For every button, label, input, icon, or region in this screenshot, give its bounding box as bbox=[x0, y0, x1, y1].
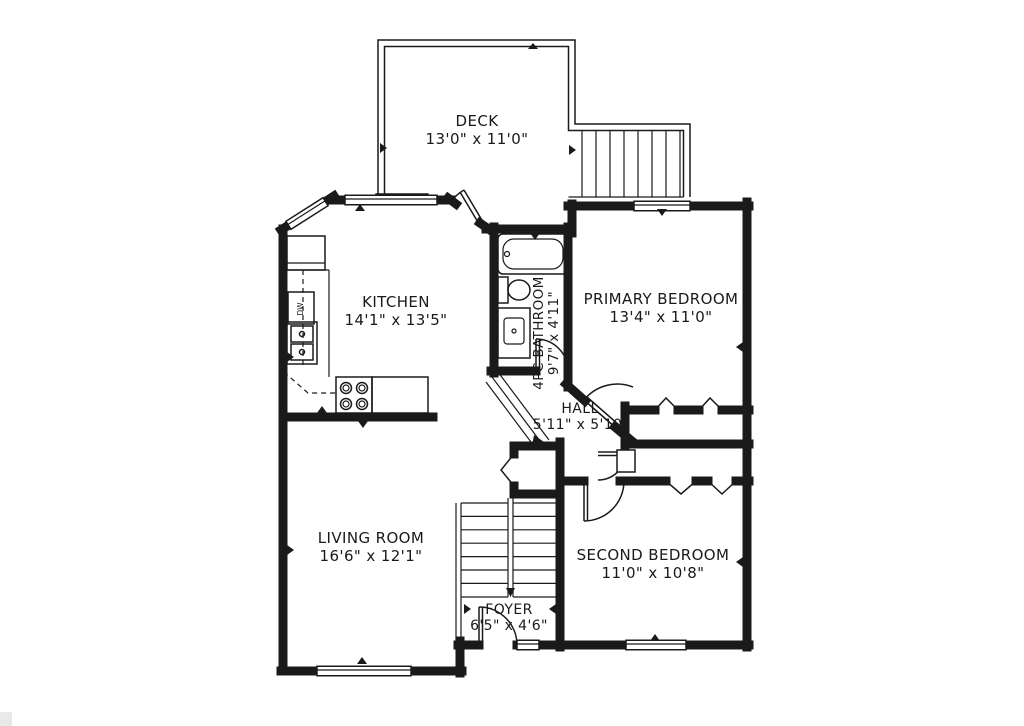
window-frame bbox=[345, 195, 437, 205]
kitchen-dims: 14'1" x 13'5" bbox=[345, 311, 448, 329]
refrigerator-body bbox=[287, 236, 325, 270]
stair-treads-right bbox=[513, 503, 556, 597]
wall-tick bbox=[287, 545, 294, 555]
wall-tick bbox=[736, 342, 743, 352]
toilet bbox=[498, 277, 530, 303]
counter-peninsula bbox=[372, 377, 428, 413]
foyer-dims: 6'5" x 4'6" bbox=[470, 618, 548, 634]
bathtub bbox=[498, 234, 568, 274]
window-frame bbox=[517, 640, 539, 650]
dishwasher-label: DW bbox=[296, 302, 305, 316]
stair-treads-left bbox=[461, 503, 508, 597]
wall-tick bbox=[549, 604, 556, 614]
wall-tick bbox=[317, 406, 327, 413]
burner-inner bbox=[359, 401, 365, 407]
burner bbox=[357, 399, 368, 410]
deck-railing-outer bbox=[378, 40, 690, 197]
second-bedroom-dims: 11'0" x 10'8" bbox=[602, 564, 705, 582]
wall-tick bbox=[657, 209, 667, 216]
stair-center-rail bbox=[508, 498, 513, 597]
vanity-drain bbox=[512, 329, 516, 333]
wall-tick bbox=[736, 557, 743, 567]
wall-tick bbox=[569, 145, 576, 155]
dishwasher: DW bbox=[288, 292, 314, 324]
wall-tick bbox=[380, 143, 387, 153]
deck-railing-inner bbox=[385, 47, 684, 198]
burner-inner bbox=[359, 385, 365, 391]
toilet-tank bbox=[498, 277, 508, 303]
second-bedroom-label: SECOND BEDROOM bbox=[577, 546, 730, 564]
hall-label: HALL bbox=[561, 401, 598, 417]
door-swing-arc bbox=[584, 481, 624, 521]
kitchen-label: KITCHEN bbox=[362, 293, 430, 311]
window-bay-top bbox=[345, 195, 437, 205]
sink-bowl-bottom bbox=[291, 344, 313, 360]
window-frame bbox=[317, 666, 411, 676]
second-bedroom-door bbox=[584, 481, 624, 521]
living-room-dims: 16'6" x 12'1" bbox=[320, 547, 423, 565]
sink-drain-bottom bbox=[300, 350, 305, 355]
living-room-label: LIVING ROOM bbox=[318, 529, 424, 547]
stair-left-rail bbox=[456, 503, 461, 642]
watermark bbox=[0, 712, 12, 726]
bathtub-faucet bbox=[505, 252, 510, 257]
hall-dims: 5'11" x 5'10" bbox=[533, 417, 629, 433]
door-leaf bbox=[584, 481, 588, 521]
primary-bedroom-label: PRIMARY BEDROOM bbox=[584, 290, 739, 308]
floor-plan: DW bbox=[0, 0, 1024, 726]
burner-inner bbox=[343, 385, 349, 391]
deck bbox=[376, 40, 690, 203]
sink-drain-top bbox=[300, 332, 305, 337]
wall-tick bbox=[464, 604, 471, 614]
door-swing-arc bbox=[584, 384, 633, 400]
window-bay-left bbox=[286, 198, 328, 230]
vanity-sink bbox=[498, 308, 530, 358]
vanity-basin bbox=[504, 318, 524, 344]
bathroom-label: 4PC BATHROOM bbox=[531, 276, 547, 389]
deck-stair-treads bbox=[582, 131, 680, 197]
burner-inner bbox=[343, 401, 349, 407]
window-living-bottom bbox=[317, 666, 411, 676]
burner bbox=[341, 399, 352, 410]
burner bbox=[357, 383, 368, 394]
deck-stairs bbox=[569, 131, 684, 197]
wall-primary-door-stub-a bbox=[566, 384, 585, 401]
burner bbox=[341, 383, 352, 394]
sink-bowl-top bbox=[291, 326, 313, 342]
window-second-bottom bbox=[626, 640, 686, 650]
linen-closet bbox=[617, 450, 635, 472]
wall-tick bbox=[357, 657, 367, 664]
deck-dims: 13'0" x 11'0" bbox=[426, 130, 529, 148]
floor-plan-page: DW bbox=[0, 0, 1024, 726]
window-glass bbox=[288, 201, 325, 225]
wall-tick bbox=[650, 634, 660, 641]
window-frame bbox=[626, 640, 686, 650]
wall-tick bbox=[358, 421, 368, 428]
deck-label: DECK bbox=[456, 112, 500, 130]
toilet-bowl bbox=[508, 280, 530, 300]
stove bbox=[336, 377, 372, 413]
bathroom-label-group: 4PC BATHROOM 9'7" x 4'11" bbox=[531, 276, 562, 389]
stair-direction-arrow bbox=[506, 588, 515, 597]
foyer-label: FOYER bbox=[485, 602, 532, 618]
window-foyer-sidelight bbox=[517, 640, 539, 650]
bathroom-dims: 9'7" x 4'11" bbox=[546, 291, 562, 375]
bathtub-inner bbox=[503, 239, 563, 269]
primary-bedroom-dims: 13'4" x 11'0" bbox=[610, 308, 713, 326]
refrigerator bbox=[287, 236, 325, 270]
upper-cabinets-dashed bbox=[284, 270, 336, 393]
hall-closet-bifold bbox=[501, 454, 514, 486]
